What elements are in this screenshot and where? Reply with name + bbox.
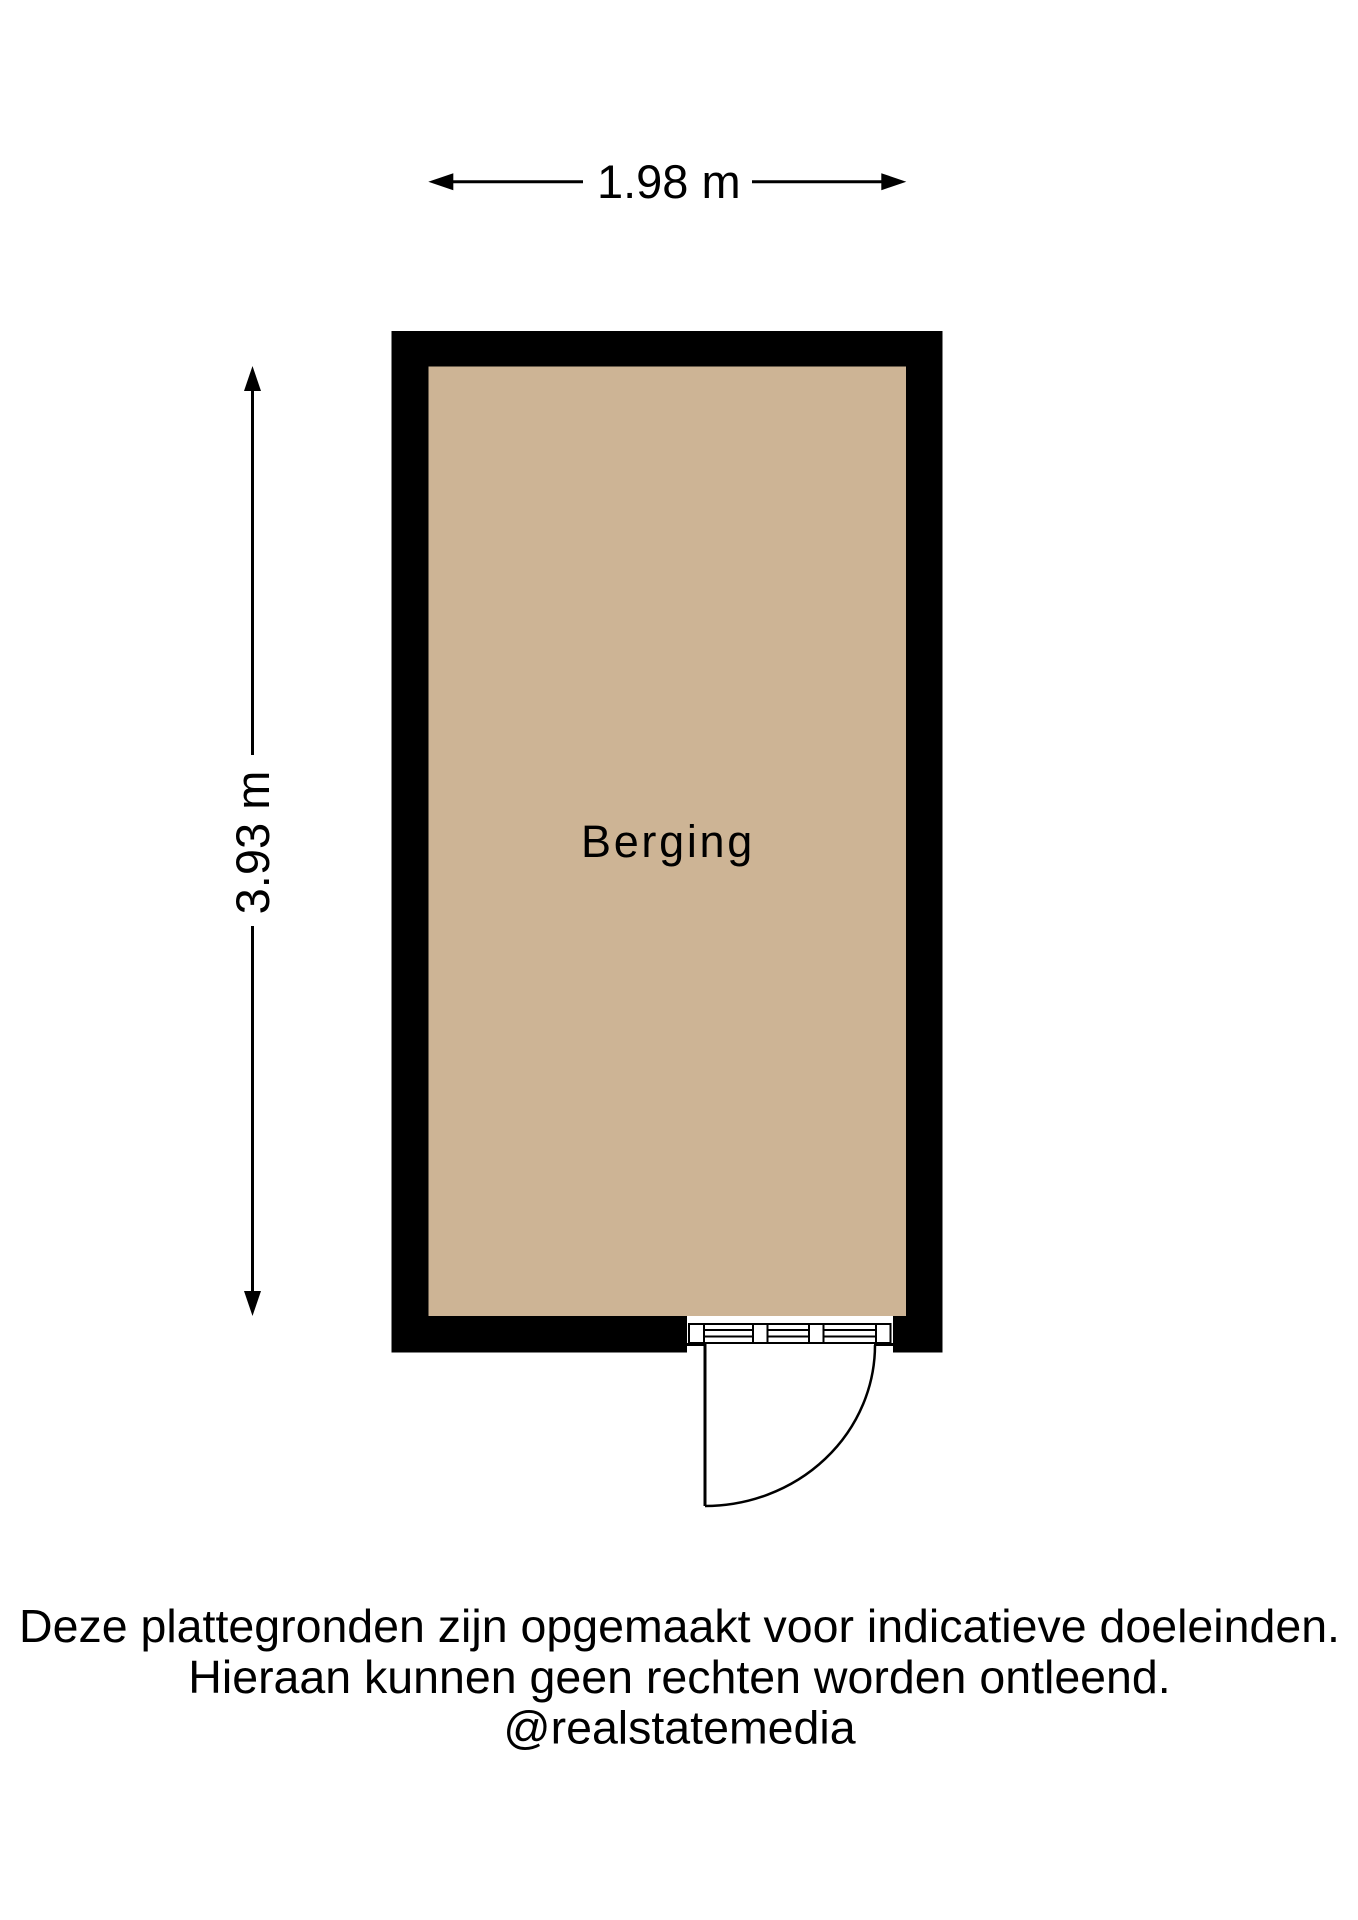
svg-text:@realstatemedia: @realstatemedia [503,1702,855,1754]
svg-text:Hieraan kunnen geen rechten wo: Hieraan kunnen geen rechten worden ontle… [188,1651,1170,1703]
svg-text:1.98 m: 1.98 m [597,155,741,208]
svg-text:Berging: Berging [581,816,755,867]
svg-text:Deze plattegronden zijn opgema: Deze plattegronden zijn opgemaakt voor i… [19,1600,1340,1652]
svg-text:3.93 m: 3.93 m [226,771,279,915]
